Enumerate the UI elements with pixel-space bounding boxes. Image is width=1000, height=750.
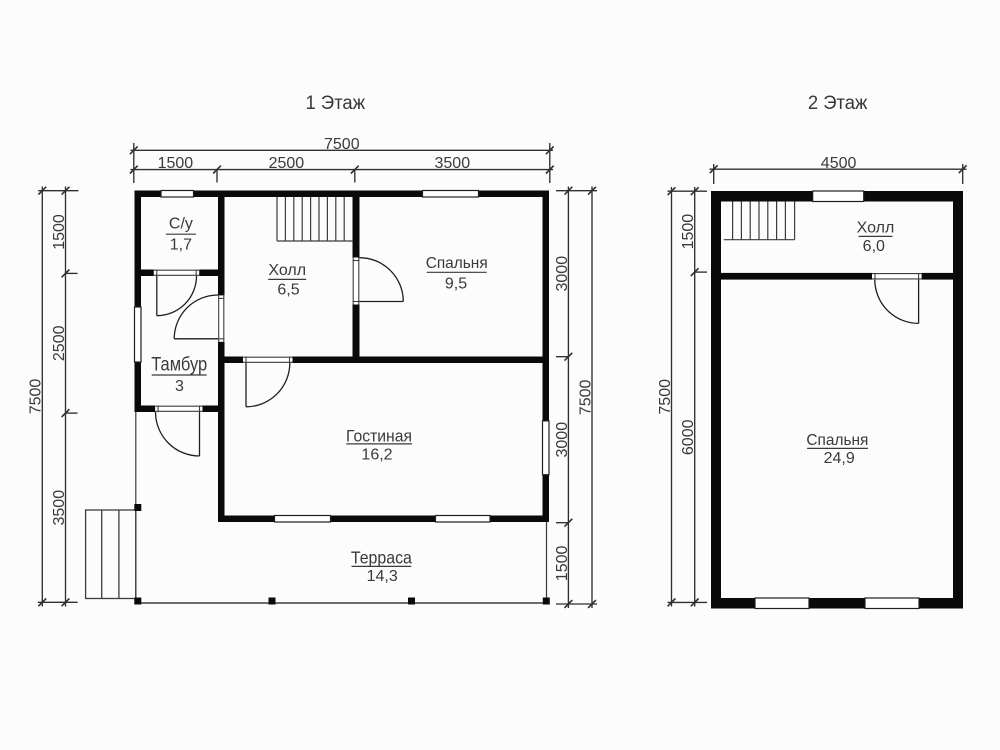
svg-text:Холл: Холл [857,220,895,237]
svg-text:1,7: 1,7 [170,237,192,254]
svg-text:3500: 3500 [435,155,471,172]
svg-text:24,9: 24,9 [824,450,855,467]
svg-text:Спальня: Спальня [426,255,488,272]
svg-text:3000: 3000 [554,256,571,292]
svg-text:7500: 7500 [28,379,45,415]
svg-text:3500: 3500 [51,490,68,526]
svg-text:Холл: Холл [268,262,306,279]
svg-text:1 Этаж: 1 Этаж [306,93,366,114]
svg-text:3: 3 [175,378,184,395]
svg-text:1500: 1500 [51,214,68,250]
svg-text:3000: 3000 [554,422,571,458]
svg-text:Гостиная: Гостиная [346,428,412,446]
svg-text:С/у: С/у [169,216,193,233]
svg-text:1500: 1500 [680,214,697,250]
svg-text:7500: 7500 [657,379,674,415]
svg-text:Тамбур: Тамбур [151,354,207,375]
svg-text:6000: 6000 [680,419,697,455]
svg-text:1500: 1500 [554,546,571,582]
svg-text:7500: 7500 [577,380,594,416]
svg-text:6,5: 6,5 [277,282,299,299]
svg-text:1500: 1500 [158,155,194,172]
svg-text:16,2: 16,2 [361,447,392,464]
svg-text:2500: 2500 [51,325,68,361]
svg-text:9,5: 9,5 [445,275,467,292]
svg-text:2 Этаж: 2 Этаж [808,93,868,114]
svg-text:7500: 7500 [324,136,360,153]
svg-text:Терраса: Терраса [351,547,412,567]
svg-text:14,3: 14,3 [367,568,398,585]
svg-text:2500: 2500 [269,155,305,172]
svg-text:Спальня: Спальня [806,432,868,449]
svg-text:4500: 4500 [821,155,857,172]
svg-text:6,0: 6,0 [863,238,885,255]
